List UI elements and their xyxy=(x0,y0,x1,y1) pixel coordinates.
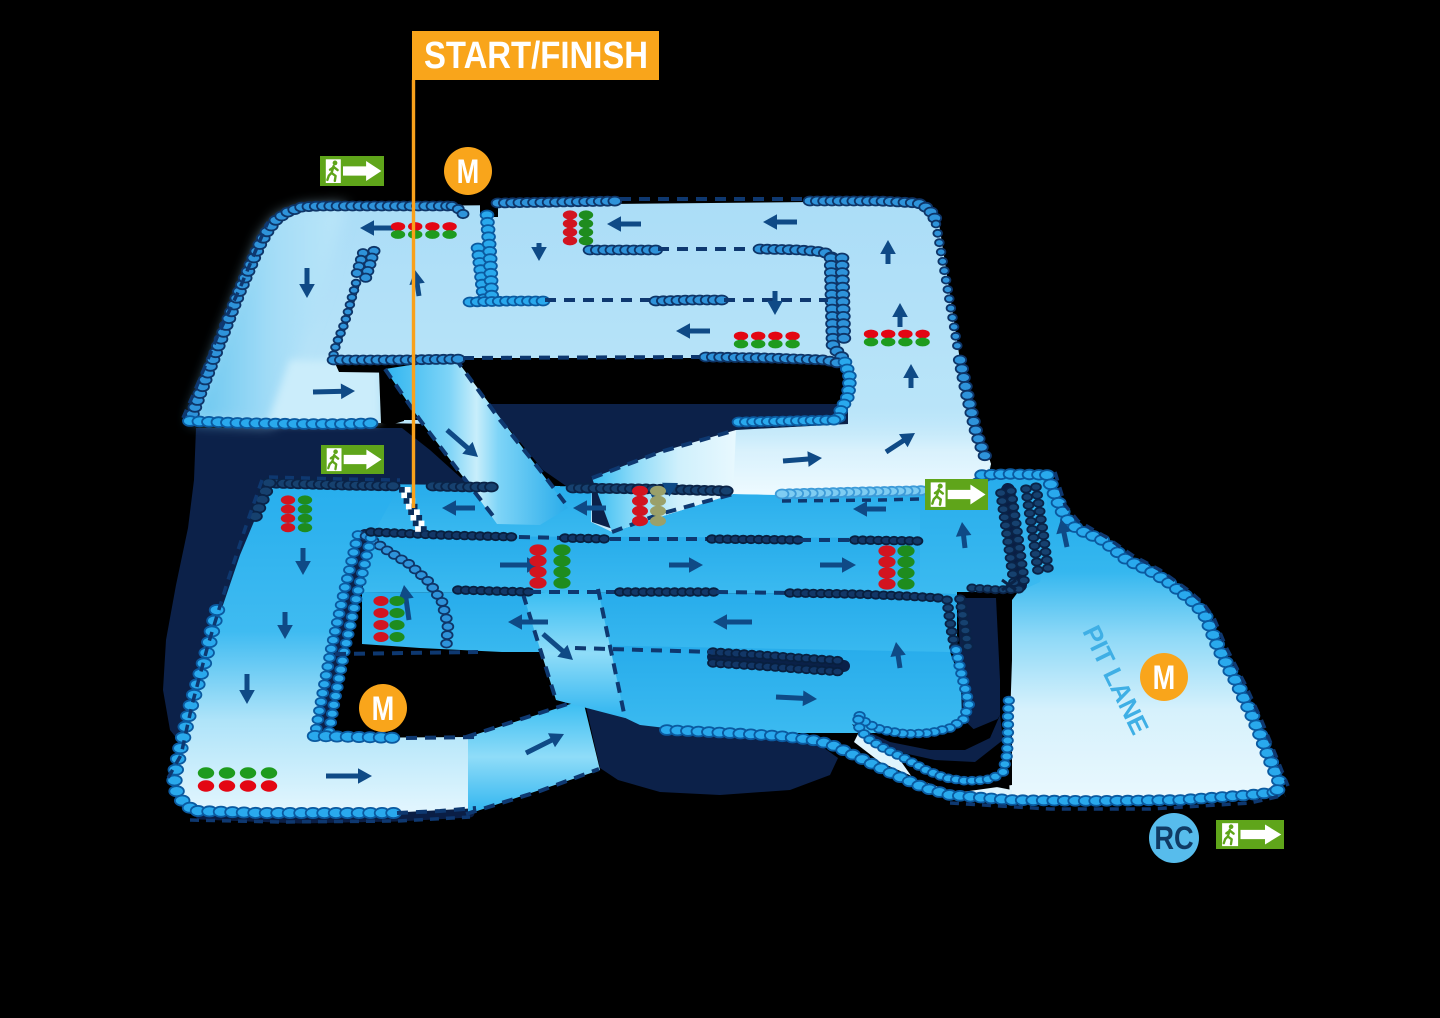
svg-text:M: M xyxy=(457,152,480,191)
svg-text:M: M xyxy=(1153,658,1176,697)
svg-text:START/FINISH: START/FINISH xyxy=(424,35,648,77)
svg-text:RC: RC xyxy=(1154,821,1193,857)
svg-text:M: M xyxy=(372,689,395,728)
